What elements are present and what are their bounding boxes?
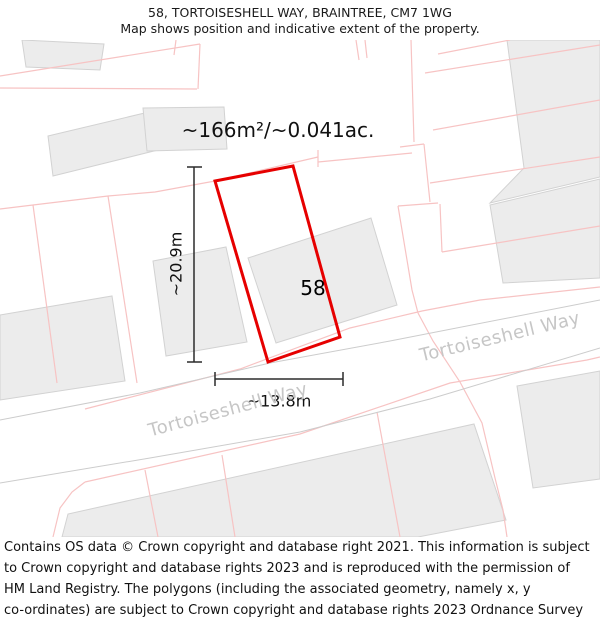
parcel-boundary-line: [398, 203, 438, 206]
parcel-boundary-line: [440, 204, 442, 252]
footer-line: to Crown copyright and database rights 2…: [4, 558, 600, 579]
parcel-boundary-line: [424, 144, 430, 202]
parcel-boundary-line: [198, 44, 200, 89]
footer-line: 100026316.: [4, 621, 600, 625]
building-footprint: [517, 371, 600, 488]
property-map-page: 58, TORTOISESHELL WAY, BRAINTREE, CM7 1W…: [0, 0, 600, 625]
height-measure-label: ~20.9m: [167, 232, 186, 297]
footer-line: HM Land Registry. The polygons (includin…: [4, 579, 600, 600]
page-title: 58, TORTOISESHELL WAY, BRAINTREE, CM7 1W…: [0, 5, 600, 21]
parcel-boundary-line: [318, 153, 412, 162]
building-footprint: [490, 40, 600, 203]
property-number-label: 58: [293, 276, 333, 300]
footer-line: co-ordinates) are subject to Crown copyr…: [4, 600, 600, 621]
parcel-boundary-line: [411, 40, 414, 142]
building-footprint: [0, 296, 125, 400]
page-subtitle: Map shows position and indicative extent…: [0, 21, 600, 37]
parcel-boundary-line: [398, 206, 418, 313]
footer-copyright: Contains OS data © Crown copyright and d…: [0, 537, 600, 625]
parcel-boundary-line: [400, 144, 424, 147]
parcel-boundary-line: [356, 40, 359, 60]
parcel-boundary-line: [365, 40, 367, 58]
building-footprint: [48, 111, 158, 176]
parcel-boundary-line: [0, 157, 318, 209]
area-label: ~166m²/~0.041ac.: [158, 117, 398, 143]
parcel-boundary-line: [0, 88, 197, 89]
header: 58, TORTOISESHELL WAY, BRAINTREE, CM7 1W…: [0, 0, 600, 40]
footer-line: Contains OS data © Crown copyright and d…: [4, 537, 600, 558]
building-footprint: [62, 424, 506, 537]
parcel-boundary-line: [438, 40, 510, 54]
